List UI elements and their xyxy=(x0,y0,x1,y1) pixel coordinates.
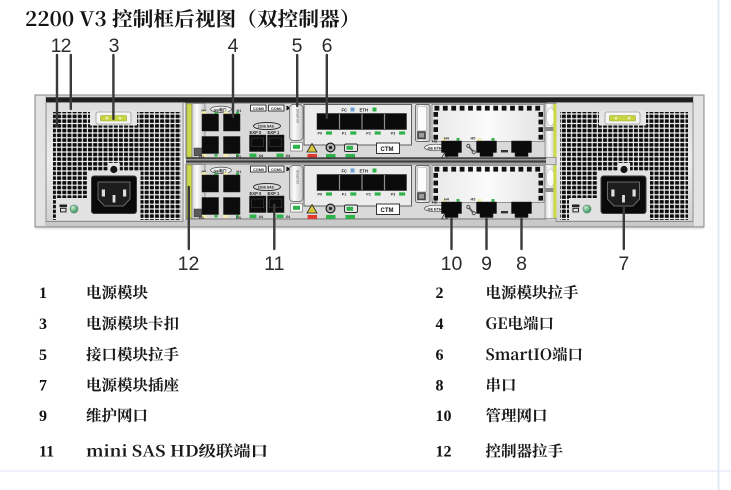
svg-text:COM1: COM1 xyxy=(271,168,282,172)
svg-text:11: 11 xyxy=(39,444,54,461)
svg-text:H5: H5 xyxy=(471,137,476,141)
svg-text:P0: P0 xyxy=(318,132,323,136)
svg-text:8: 8 xyxy=(436,378,444,395)
svg-text:Smart IO: Smart IO xyxy=(296,170,300,184)
svg-text:P2: P2 xyxy=(366,132,371,136)
svg-text:P1: P1 xyxy=(342,193,347,197)
svg-text:P3: P3 xyxy=(391,193,396,197)
svg-text:12Gb SAS: 12Gb SAS xyxy=(258,186,275,190)
svg-text:3: 3 xyxy=(109,35,120,57)
svg-text:P3: P3 xyxy=(391,132,396,136)
svg-text:2: 2 xyxy=(436,285,444,302)
svg-text:3: 3 xyxy=(39,316,47,333)
svg-text:7: 7 xyxy=(39,378,47,395)
svg-text:11: 11 xyxy=(264,253,284,275)
svg-text:12Gb SAS: 12Gb SAS xyxy=(258,125,275,129)
svg-text:H5: H5 xyxy=(471,198,476,202)
svg-text:H8: H8 xyxy=(432,140,437,144)
svg-text:H3: H3 xyxy=(236,216,241,220)
svg-text:EXP 0: EXP 0 xyxy=(250,191,262,196)
svg-text:P1: P1 xyxy=(342,132,347,136)
svg-text:H2: H2 xyxy=(199,216,204,220)
svg-text:4: 4 xyxy=(436,316,444,333)
svg-text:FC: FC xyxy=(342,169,348,174)
svg-text:7: 7 xyxy=(618,253,629,275)
svg-text:9: 9 xyxy=(481,253,492,275)
svg-text:6: 6 xyxy=(436,347,444,364)
svg-text:10: 10 xyxy=(436,408,452,425)
svg-text:1: 1 xyxy=(39,285,47,302)
svg-text:9: 9 xyxy=(39,408,47,425)
svg-text:COM1: COM1 xyxy=(271,107,282,111)
svg-text:4: 4 xyxy=(228,35,239,57)
svg-text:12: 12 xyxy=(178,253,200,275)
svg-text:5: 5 xyxy=(292,35,303,57)
svg-text:ETH: ETH xyxy=(360,169,368,174)
svg-text:Smart IO: Smart IO xyxy=(296,109,300,123)
svg-text:EXP 0: EXP 0 xyxy=(250,130,262,135)
svg-text:H8: H8 xyxy=(432,201,437,205)
svg-text:ETH: ETH xyxy=(360,108,368,113)
svg-text:6: 6 xyxy=(322,35,333,57)
svg-text:FC: FC xyxy=(342,108,348,113)
svg-text:CTM: CTM xyxy=(381,208,394,214)
svg-text:5: 5 xyxy=(39,347,47,364)
svg-text:EXP 1: EXP 1 xyxy=(268,191,280,196)
svg-text:12: 12 xyxy=(436,444,452,461)
svg-text:GE ETH: GE ETH xyxy=(428,147,442,151)
svg-text:P0: P0 xyxy=(318,193,323,197)
svg-text:CTM: CTM xyxy=(381,147,394,153)
svg-text:2: 2 xyxy=(61,35,72,57)
svg-text:EXP 1: EXP 1 xyxy=(268,130,280,135)
svg-text:10: 10 xyxy=(441,253,463,275)
svg-text:GE ETH: GE ETH xyxy=(428,208,442,212)
svg-text:COM0: COM0 xyxy=(253,168,264,172)
svg-text:P2: P2 xyxy=(366,193,371,197)
svg-text:8: 8 xyxy=(516,253,527,275)
svg-text:COM0: COM0 xyxy=(253,107,264,111)
